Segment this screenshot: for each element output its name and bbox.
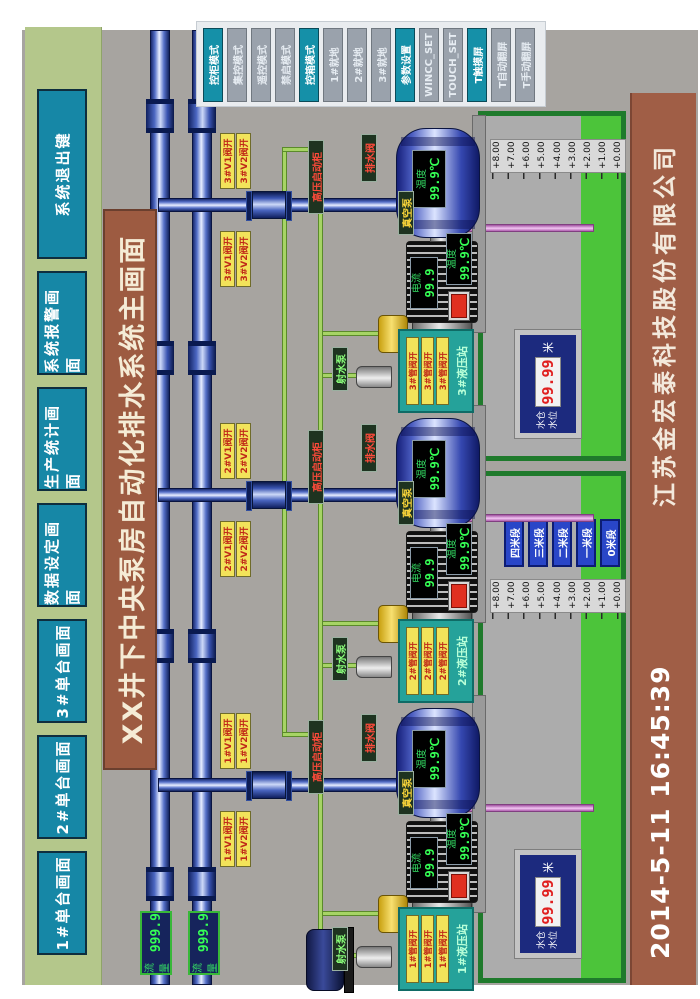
vacuum-pump-label-2: 真空泵 — [398, 481, 414, 525]
jet-pump-label-1: 射水泵 — [332, 927, 348, 971]
valve-flange — [286, 481, 292, 511]
mode-button-1-local[interactable]: 1#就地 — [323, 28, 343, 102]
pump-run-indicator-1[interactable] — [448, 871, 470, 901]
mode-button-2-local[interactable]: 2#就地 — [347, 28, 367, 102]
pump-temp-display-2: 温度99.9℃ — [412, 440, 446, 498]
valve-open-tag: 1#V2阀开 — [236, 713, 251, 769]
mode-button-touch-set[interactable]: TOUCH_SET — [443, 28, 463, 102]
mode-button-auto-page[interactable]: T自动翻屏 — [491, 28, 511, 102]
level-stage-button-1m[interactable]: 一米段 — [576, 519, 596, 567]
station-tag: 2#管阀开 — [436, 627, 449, 695]
hmi-rotated-stage: 流量999.9 流量999.9 +8.00+7.00 +6.00+5.00 +4… — [0, 0, 700, 999]
valve-open-tag: 3#V1阀开 — [220, 231, 235, 287]
discharge-valve-3 — [252, 191, 286, 219]
nav-button-production-stats[interactable]: 生产统计画面 — [37, 387, 87, 491]
valve-open-tag: 1#V1阀开 — [220, 811, 235, 867]
vacuum-pump-label-1: 真空泵 — [398, 771, 414, 815]
flow-meter-2: 流量999.9 — [188, 911, 220, 975]
station-tag: 3#管阀开 — [436, 337, 449, 405]
page-title: XX井下中央泵房自动化排水系统主画面 — [103, 209, 157, 770]
station-tag: 2#管阀开 — [406, 627, 419, 695]
ruler-ticks — [492, 613, 624, 619]
pipe-coupling — [146, 867, 174, 901]
jet-pump-label-2: 射水泵 — [332, 637, 348, 681]
drain-valve-label-2: 排水阀 — [361, 424, 377, 472]
drain-valve-label-3: 排水阀 — [361, 134, 377, 182]
nav-button-data-setting[interactable]: 数据设定画面 — [37, 503, 87, 607]
motor-temp-display-3: 温度99.9℃ — [446, 233, 472, 285]
station-tag: 3#管阀开 — [406, 337, 419, 405]
separator-tank — [356, 366, 392, 388]
valve-open-tag: 2#V2阀开 — [236, 423, 251, 479]
valve-open-tag: 3#V2阀开 — [236, 231, 251, 287]
level-stage-button-0m[interactable]: 0米段 — [600, 519, 620, 567]
pipe-coupling — [146, 99, 174, 133]
station-tag: 1#管阀开 — [421, 915, 434, 983]
pump-temp-display-1: 温度99.9℃ — [412, 730, 446, 788]
mode-button-remote[interactable]: 遥控模式 — [251, 28, 271, 102]
water-level-display-left: 水仓水位 99.99 米 — [514, 849, 582, 959]
mode-button-cabinet[interactable]: 控柜模式 — [203, 28, 223, 102]
flow-meter-1: 流量999.9 — [140, 911, 172, 975]
valve-flange — [286, 191, 292, 221]
nav-button-pump1-screen[interactable]: 1#单台画面 — [37, 851, 87, 955]
valve-open-tag: 2#V1阀开 — [220, 521, 235, 577]
mode-button-inhibit[interactable]: 禁启模式 — [275, 28, 295, 102]
separator-tank — [356, 656, 392, 678]
pump-run-indicator-3[interactable] — [448, 291, 470, 321]
pump-run-indicator-2[interactable] — [448, 581, 470, 611]
hv-cabinet-label-1: 高压启动柜 — [308, 720, 324, 794]
separator-tank — [356, 946, 392, 968]
station-tag: 1#管阀开 — [436, 915, 449, 983]
mode-button-touchscreen[interactable]: T触摸屏 — [467, 28, 487, 102]
pipe-coupling — [188, 629, 216, 663]
pipe-coupling — [188, 867, 216, 901]
station-title: 3#液压站 — [454, 331, 470, 411]
station-title: 2#液压站 — [454, 621, 470, 701]
nav-button-pump2-screen[interactable]: 2#单台画面 — [37, 735, 87, 839]
vacuum-pipe-main — [318, 149, 323, 959]
depth-ruler-left: +8.00+7.00 +6.00+5.00 +4.00+3.00 +2.00+1… — [490, 579, 626, 613]
station-title: 1#液压站 — [454, 909, 470, 989]
motor-current-display-1: 电流99.9 — [410, 837, 438, 889]
hv-cabinet-label-3: 高压启动柜 — [308, 140, 324, 214]
valve-open-tag: 3#V1阀开 — [220, 133, 235, 189]
motor-current-display-3: 电流99.9 — [410, 257, 438, 309]
discharge-valve-1 — [252, 771, 286, 799]
water-level-display-right: 水仓水位 99.99 米 — [514, 329, 582, 439]
discharge-main-2 — [192, 30, 212, 985]
mode-button-box[interactable]: 控箱模式 — [299, 28, 319, 102]
pipe-coupling — [188, 341, 216, 375]
mode-button-param-set[interactable]: 参数设置 — [395, 28, 415, 102]
hydraulic-station-1: 1#管阀开 1#管阀开 1#管阀开 1#液压站 — [398, 907, 474, 991]
valve-open-tag: 2#V1阀开 — [220, 423, 235, 479]
ruler-ticks — [492, 173, 624, 179]
discharge-valve-2 — [252, 481, 286, 509]
valve-flange — [286, 771, 292, 801]
motor-temp-display-1: 温度99.9℃ — [446, 813, 472, 865]
station-tag: 2#管阀开 — [421, 627, 434, 695]
valve-open-tag: 1#V2阀开 — [236, 811, 251, 867]
mode-button-wincc-set[interactable]: WINCC_SET — [419, 28, 439, 102]
station-tag: 3#管阀开 — [421, 337, 434, 405]
pump-temp-display-3: 温度99.9℃ — [412, 150, 446, 208]
hv-cabinet-label-2: 高压启动柜 — [308, 430, 324, 504]
nav-button-system-exit[interactable]: 系统退出键 — [37, 89, 87, 259]
water-level-value: 99.99 — [535, 877, 561, 927]
vacuum-drop — [322, 621, 380, 626]
nav-button-system-alarm[interactable]: 系统报警画面 — [37, 271, 87, 375]
water-level-value: 99.99 — [535, 357, 561, 407]
mode-button-manual-page[interactable]: T手动翻屏 — [515, 28, 535, 102]
drain-valve-label-1: 排水阀 — [361, 714, 377, 762]
hydraulic-station-3: 3#管阀开 3#管阀开 3#管阀开 3#液压站 — [398, 329, 474, 413]
level-stage-button-4m[interactable]: 四米段 — [504, 519, 524, 567]
level-stage-button-2m[interactable]: 二米段 — [552, 519, 572, 567]
motor-temp-display-2: 温度99.9℃ — [446, 523, 472, 575]
vacuum-pump-label-3: 真空泵 — [398, 191, 414, 235]
hydraulic-station-2: 2#管阀开 2#管阀开 2#管阀开 2#液压站 — [398, 619, 474, 703]
nav-button-pump3-screen[interactable]: 3#单台画面 — [37, 619, 87, 723]
company-name: 江苏金宏泰科技股份有限公司 — [645, 143, 680, 507]
datetime-display: 2014-5-11 16:45:39 — [646, 665, 675, 959]
valve-open-tag: 2#V2阀开 — [236, 521, 251, 577]
depth-ruler-right: +8.00+7.00 +6.00+5.00 +4.00+3.00 +2.00+1… — [490, 139, 626, 173]
station-tag: 1#管阀开 — [406, 915, 419, 983]
mode-button-3-local[interactable]: 3#就地 — [371, 28, 391, 102]
valve-open-tag: 3#V2阀开 — [236, 133, 251, 189]
mode-button-central[interactable]: 集控模式 — [227, 28, 247, 102]
vacuum-drop — [322, 911, 380, 916]
valve-open-tag: 1#V1阀开 — [220, 713, 235, 769]
vacuum-drop — [322, 331, 380, 336]
jet-pump-label-3: 射水泵 — [332, 347, 348, 391]
motor-current-display-2: 电流99.9 — [410, 547, 438, 599]
level-stage-button-3m[interactable]: 三米段 — [528, 519, 548, 567]
vacuum-pipe-upper — [282, 147, 287, 737]
